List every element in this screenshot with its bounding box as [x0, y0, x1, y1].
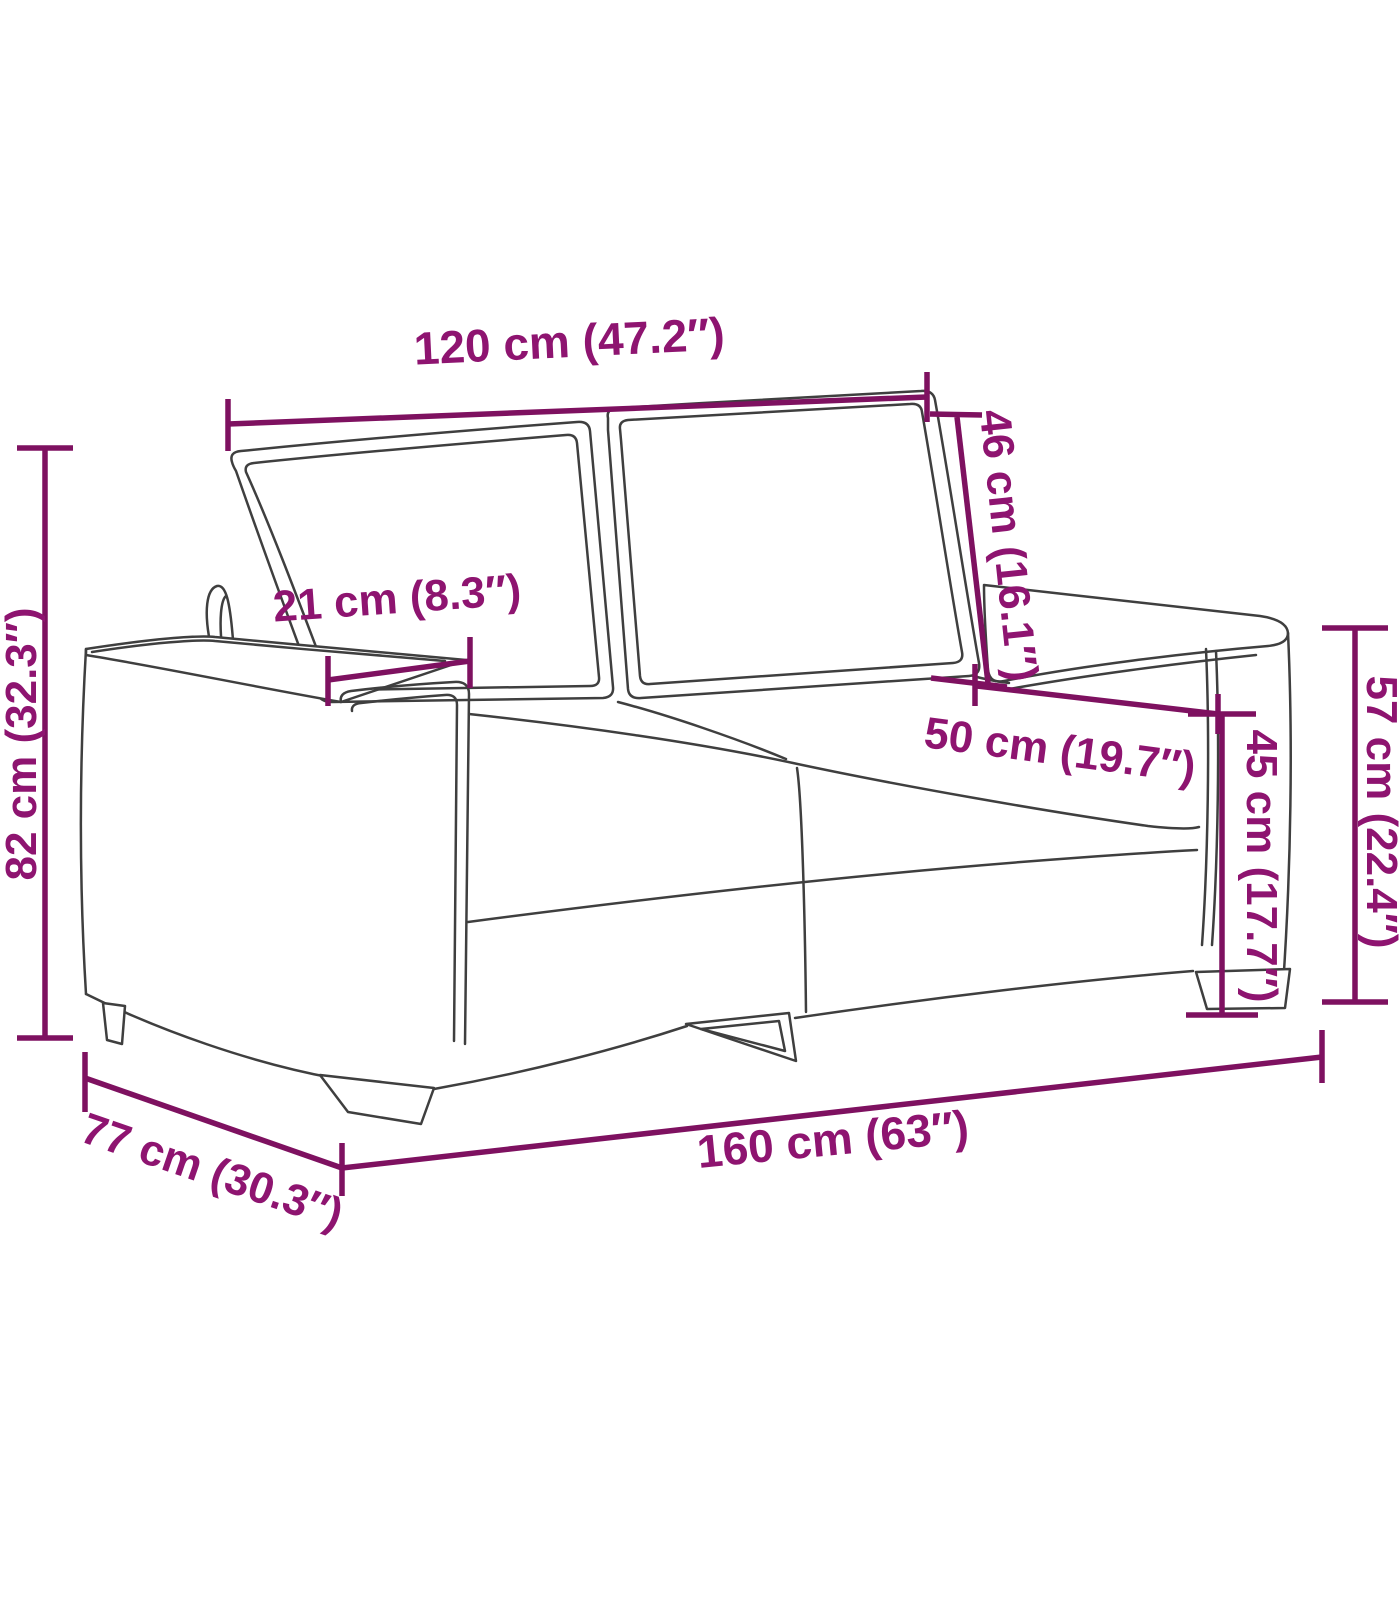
dim-line-seat-depth: [977, 686, 1218, 714]
dim-overall-width: 160 cm (63″): [342, 1030, 1322, 1196]
right-back-cushion: [608, 391, 980, 698]
dimension-diagram: 120 cm (47.2″) 46 cm (16.1″) 82 cm (32.3…: [0, 0, 1400, 1600]
dim-label-overall-height: 82 cm (32.3″): [0, 607, 46, 880]
left-arm-inner-panel-piping: [352, 695, 457, 1041]
sofa-bottom-edge-right: [795, 971, 1193, 1018]
sofa-dimension-svg: 120 cm (47.2″) 46 cm (16.1″) 82 cm (32.3…: [0, 0, 1400, 1600]
seat-cushion-divider-front: [797, 768, 806, 1012]
dim-overall-depth: 77 cm (30.3″): [75, 1052, 349, 1239]
dim-label-armrest-height: 57 cm (22.4″): [1357, 675, 1400, 948]
front-left-leg: [320, 1075, 434, 1124]
sofa-left-arm: [81, 637, 469, 1079]
dim-label-seat-height: 45 cm (17.7″): [1237, 729, 1286, 1002]
seat-front-seam: [468, 850, 1197, 922]
seat-cushion-divider-top: [618, 702, 786, 759]
sofa-bottom-edge-middle: [434, 1026, 687, 1089]
right-arm-front-piping-outer: [1202, 649, 1208, 945]
dim-overall-height: 82 cm (32.3″): [0, 448, 73, 1038]
dim-label-backrest-width: 120 cm (47.2″): [413, 307, 726, 374]
dim-label-seat-depth: 50 cm (19.7″): [921, 708, 1198, 792]
left-arm-outer-edge: [81, 649, 86, 994]
dim-armrest-height: 57 cm (22.4″): [1322, 628, 1400, 1002]
left-arm-inner-panel: [341, 682, 469, 1044]
rear-left-leg: [103, 1003, 125, 1044]
sofa-legs: [103, 969, 1290, 1124]
